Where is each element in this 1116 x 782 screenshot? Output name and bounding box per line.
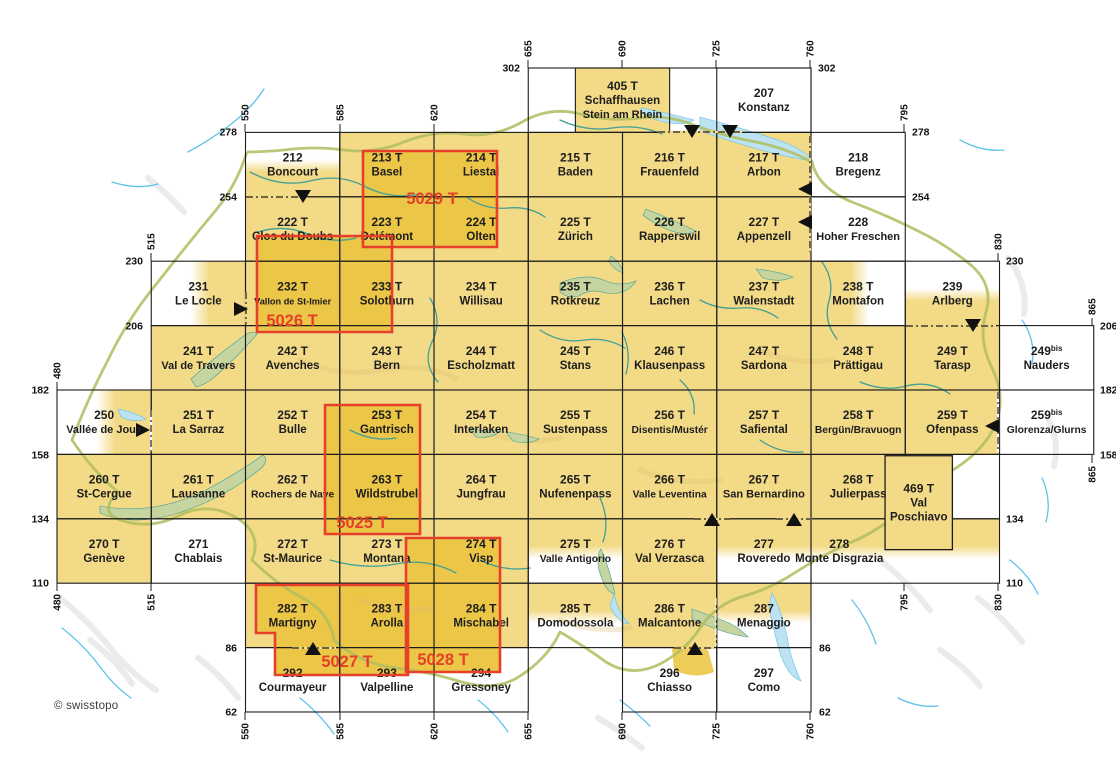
northing-label-302-right: 302: [818, 63, 836, 75]
easting-tick-795: 795: [900, 104, 911, 121]
northing-label-86-right: 86: [819, 643, 831, 655]
easting-tick-515: 515: [147, 233, 158, 250]
sheet-270-t-label: 270 TGenève: [83, 537, 125, 565]
northing-label-302-left: 302: [502, 63, 520, 75]
easting-tick-480: 480: [53, 594, 64, 611]
easting-tick-865: 865: [1088, 298, 1099, 315]
composite-5027-t-label: 5027 T: [321, 653, 372, 671]
composite-5029-t-label: 5029 T: [406, 190, 457, 208]
sheet-236-t-label: 236 TLachen: [650, 279, 690, 307]
northing-label-134-right: 134: [1006, 514, 1024, 526]
easting-tick-690: 690: [618, 40, 629, 57]
easting-tick-725: 725: [712, 723, 723, 740]
sheet-283-t-label: 283 TArolla: [371, 601, 404, 629]
easting-tick-655: 655: [524, 40, 535, 57]
northing-label-86-left: 86: [225, 643, 237, 655]
northing-label-182-right: 182: [1100, 385, 1116, 397]
easting-tick-690: 690: [618, 723, 629, 740]
easting-tick-760: 760: [806, 40, 817, 57]
river-line: [1042, 478, 1048, 522]
sheet-243-t-label: 243 TBern: [372, 344, 403, 372]
sheet-214-t-label: 214 TLiestal: [463, 151, 499, 179]
easting-tick-585: 585: [336, 723, 347, 740]
relief-shading: [148, 178, 184, 212]
sheet-215-t-label: 215 TBaden: [558, 151, 593, 179]
sheet-252-t-label: 252 TBulle: [277, 408, 308, 436]
easting-tick-725: 725: [712, 40, 723, 57]
northing-label-158-right: 158: [1100, 450, 1116, 462]
relief-shading: [198, 658, 238, 698]
northing-label-62-right: 62: [819, 707, 831, 719]
easting-tick-760: 760: [806, 723, 817, 740]
northing-label-254-left: 254: [219, 192, 237, 204]
sheet-217-t-label: 217 TArbon: [747, 151, 781, 179]
northing-label-278-left: 278: [219, 127, 237, 139]
river-line: [898, 698, 938, 706]
composite-5026-t-label: 5026 T: [266, 312, 317, 330]
swisstopo-sheet-index-map: 405 TSchaffhausenStein am Rhein207Konsta…: [0, 0, 1116, 782]
northing-label-110-right: 110: [1006, 578, 1023, 590]
northing-label-134-left: 134: [31, 514, 49, 526]
river-line: [960, 140, 1004, 150]
easting-tick-655: 655: [524, 723, 535, 740]
easting-tick-830: 830: [994, 233, 1005, 250]
northing-label-206-right: 206: [1100, 321, 1116, 333]
northing-label-110-left: 110: [32, 578, 49, 590]
easting-tick-550: 550: [241, 723, 252, 740]
sheet-274-t-label: 274 TVisp: [466, 537, 497, 565]
composite-5028-t-label: 5028 T: [417, 651, 468, 669]
easting-tick-515: 515: [147, 594, 158, 611]
copyright-attribution: © swisstopo: [54, 700, 118, 712]
sheet-245-t-label: 245 TStans: [560, 344, 592, 372]
composite-5025-t-label: 5025 T: [336, 514, 387, 532]
northing-label-158-left: 158: [31, 450, 49, 462]
sheet-249-t-label: 249 TTarasp: [934, 344, 971, 372]
sheet-224-t-label: 224 TOlten: [466, 215, 497, 243]
northing-label-182-left: 182: [31, 385, 49, 397]
easting-tick-480: 480: [53, 362, 64, 379]
easting-tick-795: 795: [900, 594, 911, 611]
northing-label-278-right: 278: [912, 127, 930, 139]
northing-label-230-right: 230: [1006, 256, 1024, 268]
northing-label-206-left: 206: [125, 321, 143, 333]
map-canvas: 405 TSchaffhausenStein am Rhein207Konsta…: [0, 0, 1116, 782]
easting-tick-550: 550: [241, 104, 252, 121]
sheet-225-t-label: 225 TZürich: [558, 215, 593, 243]
easting-tick-865: 865: [1088, 466, 1099, 483]
easting-tick-830: 830: [994, 594, 1005, 611]
northing-label-254-right: 254: [912, 192, 930, 204]
relief-shading: [940, 650, 980, 686]
northing-label-62-left: 62: [225, 707, 237, 719]
sheet-213-t-label: 213 TBasel: [372, 151, 403, 179]
easting-tick-585: 585: [336, 104, 347, 121]
easting-tick-620: 620: [430, 723, 441, 740]
northing-label-230-left: 230: [125, 256, 143, 268]
easting-tick-620: 620: [430, 104, 441, 121]
sheet-234-t-label: 234 TWillisau: [459, 279, 502, 307]
river-line: [852, 600, 876, 644]
